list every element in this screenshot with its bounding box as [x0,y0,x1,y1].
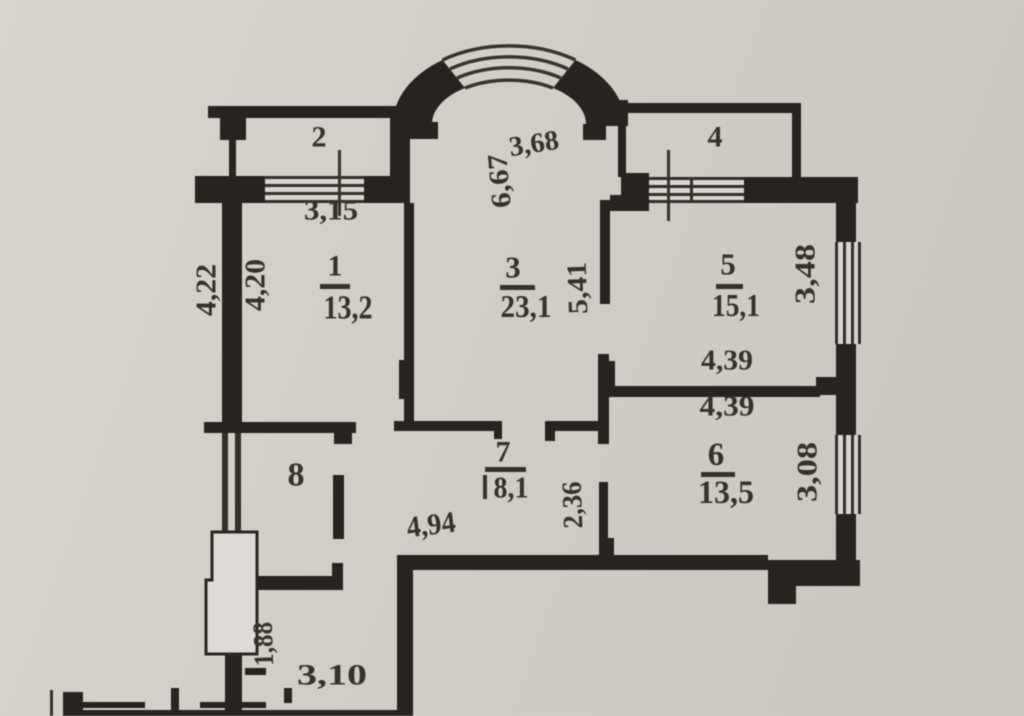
svg-text:5,41: 5,41 [562,261,595,314]
svg-text:15,1: 15,1 [712,287,760,323]
svg-text:13,2: 13,2 [324,290,373,327]
svg-text:3: 3 [505,250,521,285]
svg-text:1,88: 1,88 [248,621,281,666]
svg-text:1: 1 [328,250,343,283]
svg-text:3,15: 3,15 [304,196,358,227]
svg-text:3,08: 3,08 [793,442,824,502]
svg-text:8: 8 [288,457,305,494]
svg-text:6: 6 [708,437,725,473]
svg-text:4,94: 4,94 [405,506,458,545]
svg-text:4,39: 4,39 [701,346,753,377]
svg-text:2: 2 [312,121,327,154]
svg-text:4,39: 4,39 [700,392,755,423]
svg-text:7: 7 [496,436,511,469]
svg-text:4: 4 [708,121,723,154]
svg-text:23,1: 23,1 [501,288,552,324]
svg-text:4,22: 4,22 [192,264,223,316]
svg-text:2,36: 2,36 [557,481,590,529]
svg-text:13,5: 13,5 [698,475,754,511]
svg-text:5: 5 [720,247,736,282]
svg-text:8,1: 8,1 [494,470,529,505]
svg-text:3,10: 3,10 [297,659,367,692]
svg-text:3,48: 3,48 [791,244,822,304]
svg-text:4,20: 4,20 [241,259,272,311]
